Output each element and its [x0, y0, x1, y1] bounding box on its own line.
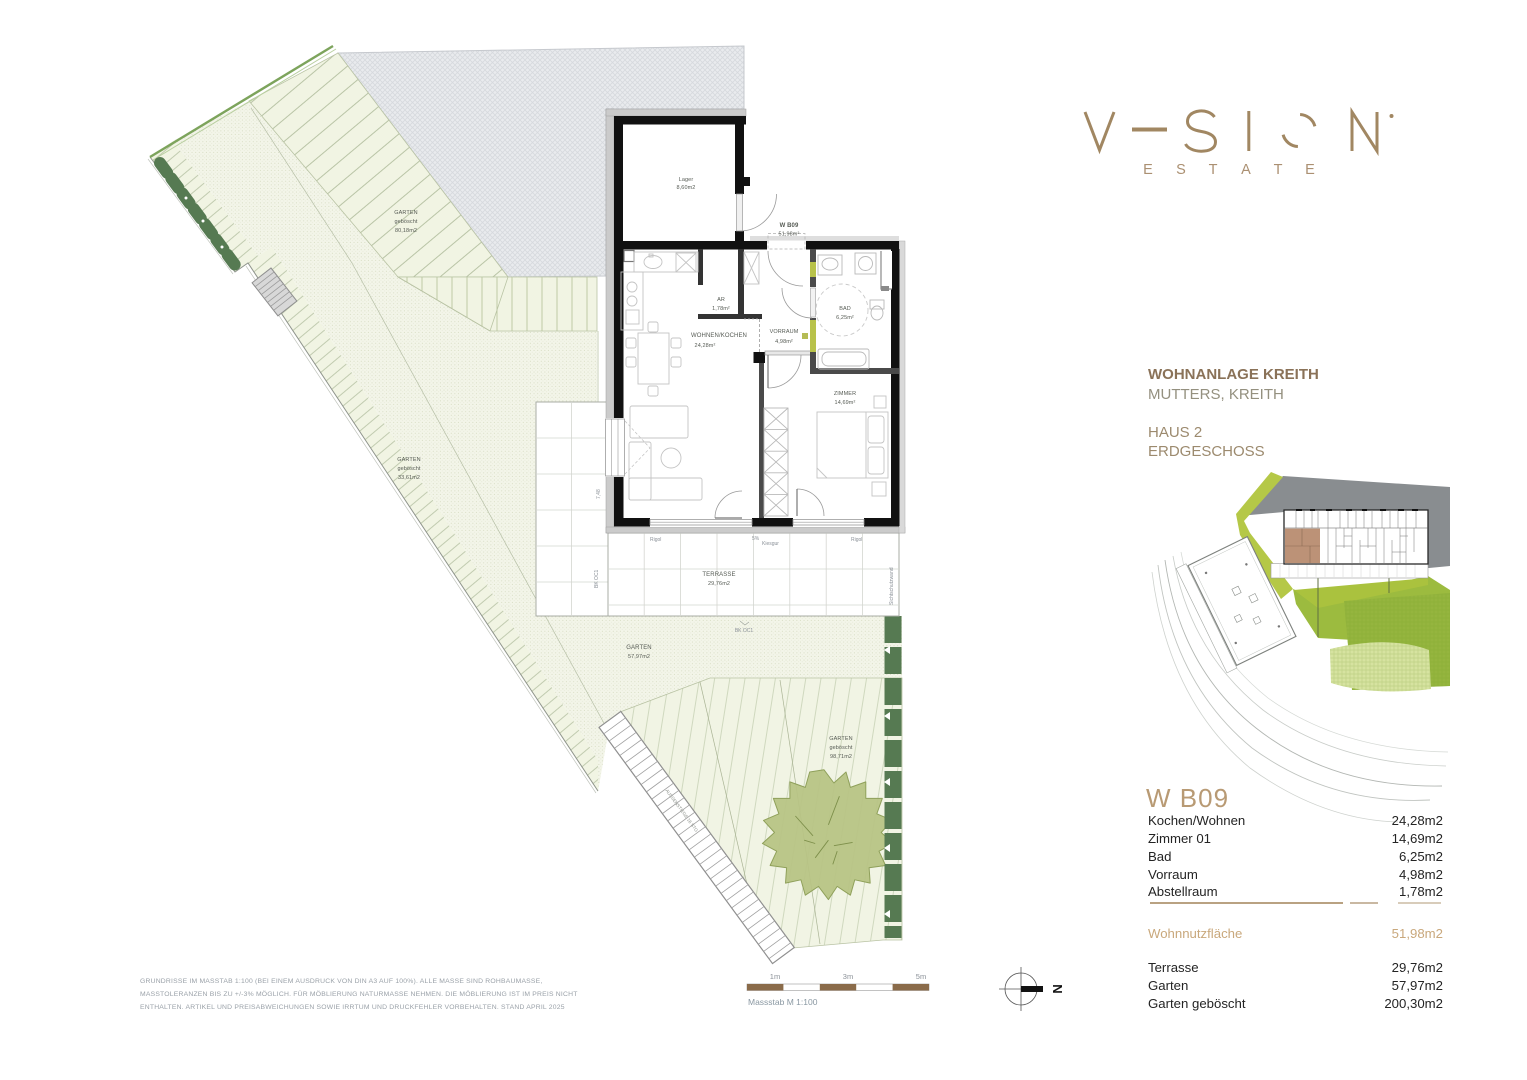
svg-text:GARTEN: GARTEN [829, 736, 852, 742]
svg-text:geböscht: geböscht [829, 745, 852, 751]
svg-text:MASSTOLERANZEN BIS ZU +/-3% MÖ: MASSTOLERANZEN BIS ZU +/-3% MÖGLICH. FÜR… [140, 990, 578, 998]
svg-text:1,78m2: 1,78m2 [1399, 884, 1443, 899]
svg-text:geböscht: geböscht [394, 219, 417, 225]
svg-text:14,69m2: 14,69m2 [1392, 831, 1443, 846]
svg-text:VORRAUM: VORRAUM [770, 329, 799, 335]
svg-text:geböscht: geböscht [397, 466, 420, 472]
svg-text:6,25m2: 6,25m2 [1399, 849, 1443, 864]
svg-text:Lager: Lager [679, 177, 694, 183]
svg-text:24,28m²: 24,28m² [695, 343, 716, 349]
svg-text:8,60m2: 8,60m2 [677, 185, 696, 191]
svg-text:E: E [1305, 162, 1315, 178]
svg-text:29,76m2: 29,76m2 [708, 581, 730, 587]
svg-text:1,78m²: 1,78m² [712, 306, 730, 312]
svg-text:Abstellraum: Abstellraum [1148, 884, 1218, 899]
svg-text:5%: 5% [752, 536, 760, 542]
svg-text:Garten geböscht: Garten geböscht [1148, 996, 1246, 1011]
svg-text:BK OC1: BK OC1 [735, 628, 754, 634]
svg-text:BAD: BAD [839, 306, 851, 312]
svg-text:5m: 5m [916, 972, 926, 981]
svg-text:Rigol: Rigol [851, 537, 862, 543]
svg-text:Wohnnutzfläche: Wohnnutzfläche [1148, 926, 1242, 941]
svg-text:Sichtschutzwand: Sichtschutzwand [889, 567, 895, 605]
svg-text:A: A [1241, 162, 1251, 178]
svg-text:N: N [1050, 984, 1065, 993]
svg-text:Vorraum: Vorraum [1148, 867, 1198, 882]
svg-text:4,98m²: 4,98m² [775, 339, 793, 345]
svg-text:ZIMMER: ZIMMER [834, 391, 856, 397]
svg-text:Bad: Bad [1148, 849, 1171, 864]
svg-text:Kochen/Wohnen: Kochen/Wohnen [1148, 813, 1245, 828]
svg-text:29,76m2: 29,76m2 [1392, 960, 1443, 975]
svg-text:Zimmer 01: Zimmer 01 [1148, 831, 1211, 846]
svg-text:57,97m2: 57,97m2 [1392, 978, 1443, 993]
svg-text:57,97m2: 57,97m2 [628, 654, 650, 660]
svg-text:51,98m²: 51,98m² [779, 232, 800, 238]
svg-text:Kiesgur: Kiesgur [762, 541, 779, 547]
svg-text:T: T [1274, 162, 1283, 178]
svg-text:GARTEN: GARTEN [626, 645, 652, 651]
svg-text:HAUS 2: HAUS 2 [1148, 424, 1202, 441]
svg-text:W B09: W B09 [1146, 783, 1229, 813]
svg-text:WOHNANLAGE KREITH: WOHNANLAGE KREITH [1148, 366, 1319, 383]
svg-text:E: E [1143, 162, 1153, 178]
svg-text:7,48: 7,48 [596, 489, 602, 499]
svg-text:3m: 3m [843, 972, 853, 981]
svg-text:MUTTERS, KREITH: MUTTERS, KREITH [1148, 386, 1284, 403]
svg-text:14,69m²: 14,69m² [835, 400, 856, 406]
svg-text:1m: 1m [770, 972, 780, 981]
svg-text:Terrasse: Terrasse [1148, 960, 1199, 975]
svg-text:ENTHALTEN. ARTIKEL UND PREISAB: ENTHALTEN. ARTIKEL UND PREISABWEICHUNGEN… [140, 1004, 565, 1011]
svg-text:GARTEN: GARTEN [397, 457, 420, 463]
svg-text:Massstab M 1:100: Massstab M 1:100 [748, 997, 818, 1007]
svg-text:GARTEN: GARTEN [394, 210, 417, 216]
svg-text:BK OC1: BK OC1 [594, 569, 600, 588]
svg-text:51,98m2: 51,98m2 [1392, 926, 1443, 941]
svg-text:80,18m2: 80,18m2 [395, 228, 417, 234]
svg-text:98,71m2: 98,71m2 [830, 754, 852, 760]
svg-text:6,25m²: 6,25m² [836, 315, 854, 321]
svg-text:4,98m2: 4,98m2 [1399, 867, 1443, 882]
svg-text:24,28m2: 24,28m2 [1392, 813, 1443, 828]
svg-text:AR: AR [717, 297, 725, 303]
svg-text:Garten: Garten [1148, 978, 1188, 993]
svg-text:WOHNEN/KOCHEN: WOHNEN/KOCHEN [691, 333, 747, 339]
svg-text:W B09: W B09 [780, 223, 799, 229]
svg-text:GRUNDRISSE IM MASSTAB 1:100 (B: GRUNDRISSE IM MASSTAB 1:100 (BEI EINEM A… [140, 978, 542, 985]
svg-text:200,30m2: 200,30m2 [1384, 996, 1443, 1011]
svg-text:33,61m2: 33,61m2 [398, 475, 420, 481]
svg-text:S: S [1176, 162, 1186, 178]
svg-text:Rigol: Rigol [650, 537, 661, 543]
svg-text:TERRASSE: TERRASSE [702, 572, 735, 578]
svg-text:T: T [1209, 162, 1218, 178]
svg-text:ERDGESCHOSS: ERDGESCHOSS [1148, 443, 1265, 460]
